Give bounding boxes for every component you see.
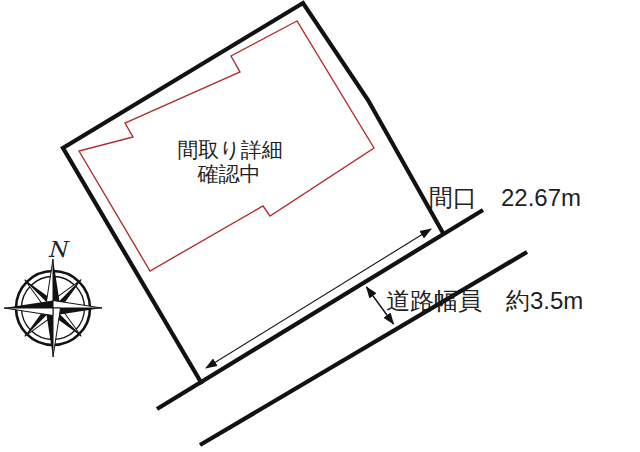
site-plan-canvas: 間取り詳細 確認中 間口 22.67m 道路幅員 約3.5m: [0, 0, 640, 452]
compass-cardinal-points: [4, 259, 102, 357]
property-site-plan: 間取り詳細 確認中 間口 22.67m 道路幅員 約3.5m: [0, 0, 640, 452]
compass-north-label: N: [47, 237, 70, 262]
floorplan-note-line2: 確認中: [197, 162, 261, 185]
label-layer: 間取り詳細 確認中 間口 22.67m 道路幅員 約3.5m: [177, 138, 583, 314]
compass-rose-icon: [4, 259, 102, 357]
ink-lines: [63, 3, 527, 445]
frontage-label: 間口 22.67m: [429, 184, 581, 211]
land-plot-outline: [63, 3, 443, 384]
floorplan-note-line1: 間取り詳細: [177, 138, 283, 161]
road-width-label: 道路幅員 約3.5m: [386, 287, 583, 314]
